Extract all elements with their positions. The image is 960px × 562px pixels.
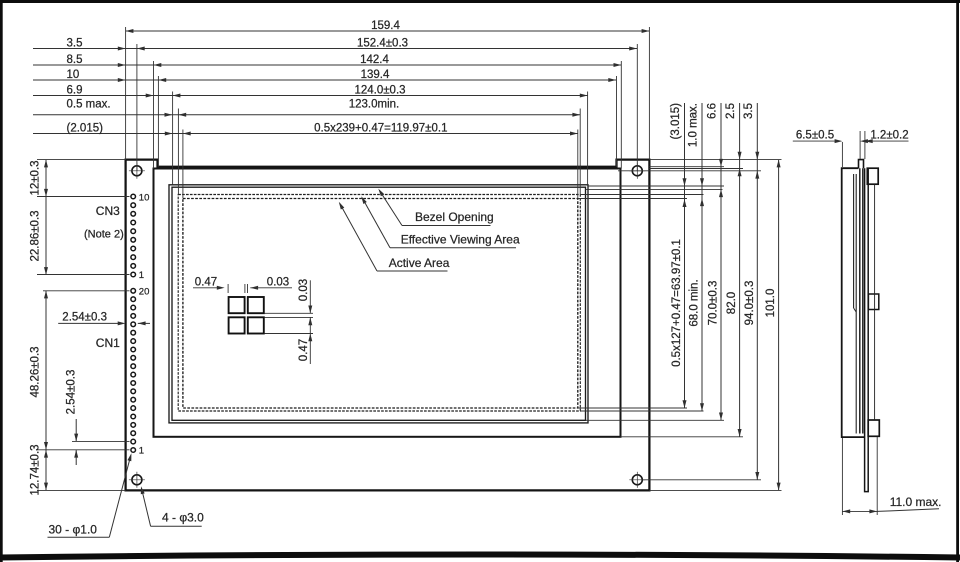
svg-text:2.5: 2.5: [725, 103, 737, 119]
svg-text:152.4±0.3: 152.4±0.3: [357, 38, 408, 50]
svg-text:6.9: 6.9: [67, 85, 83, 97]
svg-text:Effective Viewing Area: Effective Viewing Area: [401, 233, 520, 247]
svg-text:3.5: 3.5: [67, 38, 83, 50]
svg-text:68.0 min.: 68.0 min.: [689, 279, 701, 326]
svg-text:10: 10: [67, 69, 80, 81]
svg-text:1.2±0.2: 1.2±0.2: [870, 129, 908, 141]
svg-text:1: 1: [139, 270, 144, 281]
svg-text:30 - φ1.0: 30 - φ1.0: [49, 522, 98, 536]
svg-text:82.0: 82.0: [726, 292, 738, 314]
svg-text:3.5: 3.5: [743, 103, 755, 119]
svg-text:0.03: 0.03: [267, 276, 289, 288]
svg-text:(3.015): (3.015): [670, 103, 682, 140]
svg-text:CN3: CN3: [96, 204, 120, 218]
svg-text:0.47: 0.47: [195, 276, 217, 288]
svg-text:124.0±0.3: 124.0±0.3: [354, 85, 405, 97]
svg-text:48.26±0.3: 48.26±0.3: [30, 346, 42, 397]
svg-text:22.86±0.3: 22.86±0.3: [30, 210, 42, 261]
svg-text:0.5x239+0.47=119.97±0.1: 0.5x239+0.47=119.97±0.1: [314, 123, 447, 135]
svg-text:2.54±0.3: 2.54±0.3: [62, 312, 107, 324]
svg-text:123.0min.: 123.0min.: [349, 99, 400, 111]
svg-text:4 - φ3.0: 4 - φ3.0: [162, 511, 204, 525]
svg-text:0.47: 0.47: [298, 339, 310, 361]
svg-text:6.6: 6.6: [707, 103, 719, 119]
svg-text:139.4: 139.4: [361, 69, 390, 81]
svg-text:12±0.3: 12±0.3: [30, 160, 42, 195]
svg-text:12.74±0.3: 12.74±0.3: [30, 444, 42, 495]
svg-text:0.5x127+0.47=63.97±0.1: 0.5x127+0.47=63.97±0.1: [671, 239, 683, 367]
svg-text:1.0 max.: 1.0 max.: [688, 103, 700, 147]
svg-text:20: 20: [139, 286, 150, 297]
svg-text:6.5±0.5: 6.5±0.5: [796, 129, 834, 141]
svg-text:70.0±0.3: 70.0±0.3: [708, 281, 720, 326]
svg-text:94.0±0.3: 94.0±0.3: [744, 281, 756, 326]
svg-text:(Note 2): (Note 2): [84, 229, 124, 241]
svg-text:2.54±0.3: 2.54±0.3: [66, 370, 78, 415]
svg-text:11.0 max.: 11.0 max.: [890, 495, 942, 509]
svg-text:10: 10: [139, 193, 150, 204]
svg-text:101.0: 101.0: [765, 289, 777, 318]
svg-text:142.4: 142.4: [360, 54, 389, 66]
svg-text:159.4: 159.4: [371, 20, 400, 32]
svg-text:0.5 max.: 0.5 max.: [67, 99, 111, 111]
svg-text:Active Area: Active Area: [389, 256, 450, 270]
svg-text:0.03: 0.03: [298, 279, 310, 301]
svg-text:CN1: CN1: [96, 336, 120, 350]
svg-text:(2.015): (2.015): [67, 123, 104, 135]
svg-text:8.5: 8.5: [67, 54, 83, 66]
svg-text:1: 1: [139, 446, 144, 457]
svg-text:Bezel Opening: Bezel Opening: [415, 210, 494, 224]
